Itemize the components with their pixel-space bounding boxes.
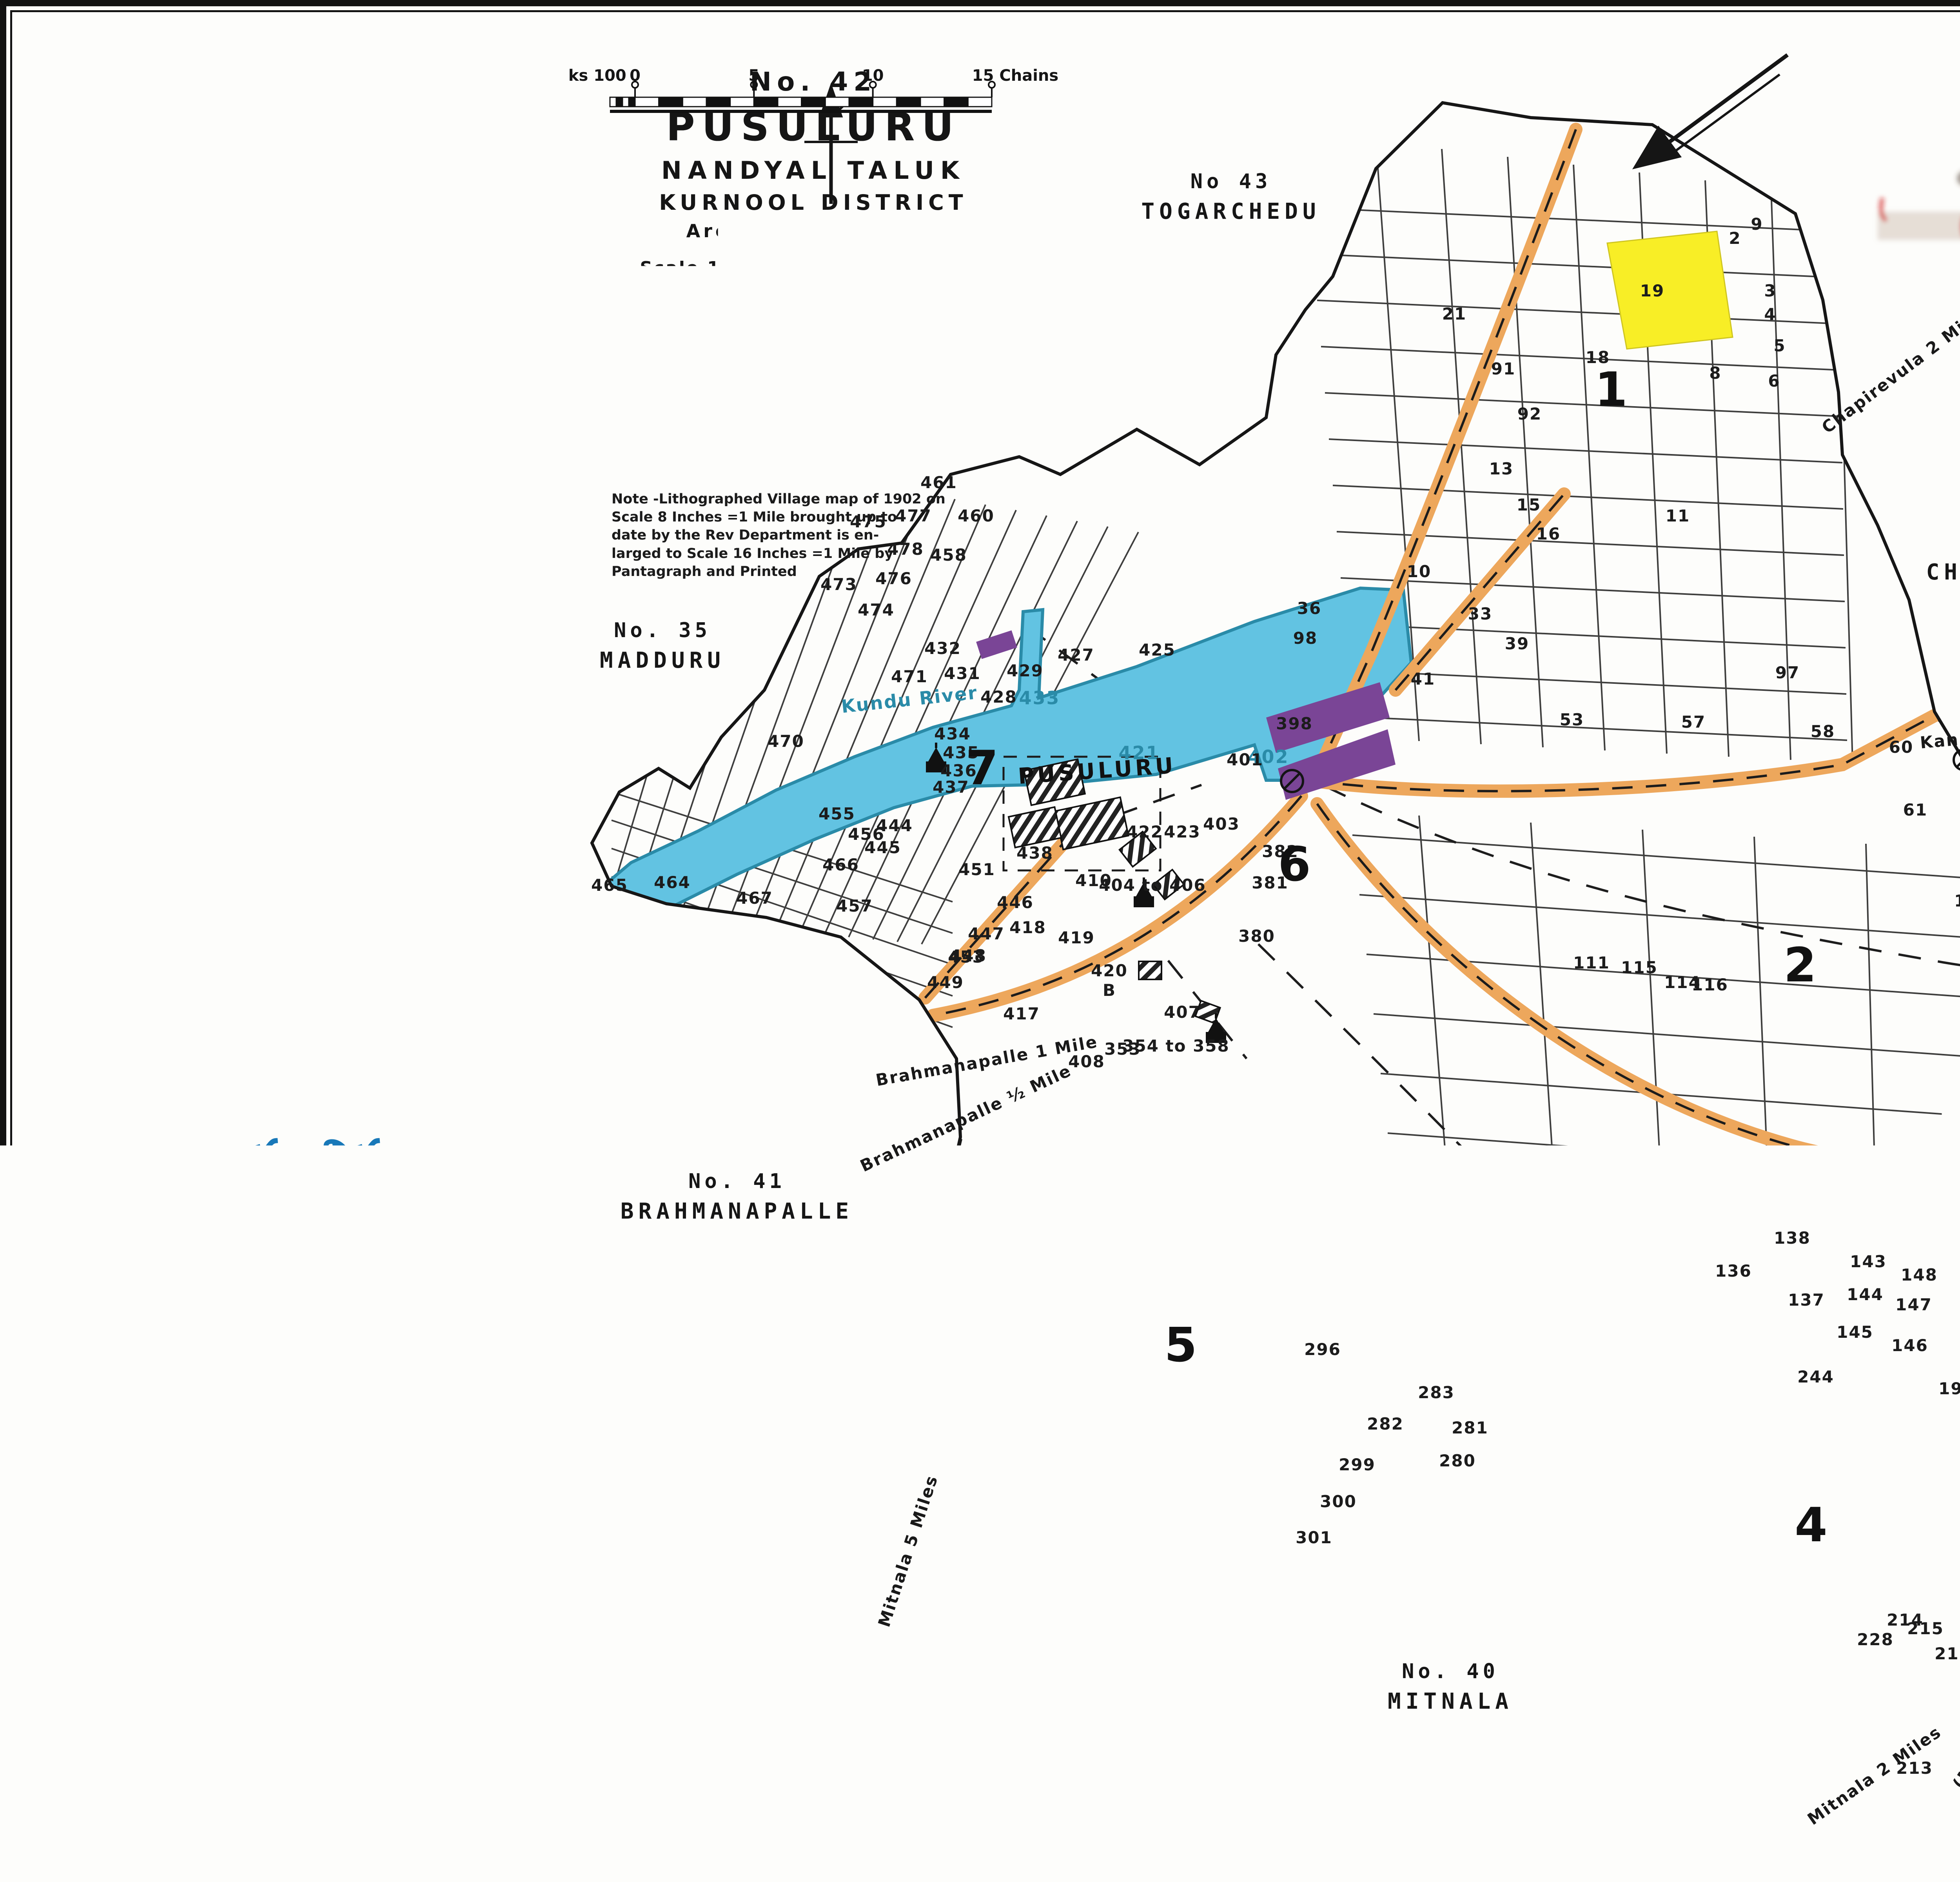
svg-text:152: 152 — [1954, 891, 1960, 910]
svg-text:244: 244 — [1797, 1367, 1834, 1386]
svg-text:417: 417 — [1003, 1004, 1040, 1023]
erased-pen-marks — [1878, 170, 1960, 282]
svg-text:215: 215 — [1907, 1619, 1944, 1638]
svg-text:148: 148 — [1901, 1265, 1938, 1284]
svg-text:398: 398 — [1276, 714, 1313, 733]
svg-text:97: 97 — [1775, 663, 1800, 682]
district-title: KURNOOL DISTRICT — [568, 190, 1058, 215]
svg-text:19: 19 — [1640, 281, 1664, 300]
svg-text:No. 40: No. 40 — [1402, 1660, 1499, 1683]
svg-text:437: 437 — [933, 778, 969, 797]
svg-text:39: 39 — [1505, 634, 1529, 653]
svg-text:281: 281 — [1452, 1418, 1488, 1437]
svg-text:15 Chains: 15 Chains — [972, 67, 1058, 85]
legend-swatch — [73, 1570, 186, 1630]
svg-text:2: 2 — [1784, 938, 1817, 993]
svg-text:427: 427 — [1058, 645, 1094, 665]
svg-text:455: 455 — [818, 804, 855, 823]
legend-swatch — [73, 1654, 186, 1715]
svg-text:467: 467 — [736, 888, 773, 908]
svg-text:98: 98 — [1293, 629, 1318, 648]
svg-text:195: 195 — [1938, 1379, 1960, 1398]
svg-text:401: 401 — [1227, 750, 1263, 769]
svg-text:115: 115 — [1621, 958, 1658, 977]
legend-item-2: అసైన్డ్ భూములు — [73, 1400, 974, 1461]
svg-text:353: 353 — [1104, 1039, 1141, 1059]
svg-text:57: 57 — [1681, 712, 1706, 732]
svg-text:432: 432 — [924, 639, 961, 658]
legend-label: చెరువులు, కాలువలు మరియు వాగులు — [233, 1742, 804, 1796]
svg-text:36: 36 — [1297, 599, 1321, 618]
svg-text:0: 0 — [630, 67, 641, 85]
svg-text:60: 60 — [1889, 738, 1913, 757]
svg-text:138: 138 — [1774, 1228, 1811, 1248]
svg-text:21: 21 — [1442, 304, 1466, 323]
svg-text:9: 9 — [1751, 214, 1763, 234]
svg-text:425: 425 — [1139, 640, 1176, 659]
legend-label: ఫారెస్ట్ భూములు — [233, 1658, 479, 1711]
svg-text:449: 449 — [927, 973, 964, 992]
svg-text:422: 422 — [1126, 822, 1163, 841]
svg-text:471: 471 — [891, 667, 928, 686]
svg-text:434: 434 — [934, 724, 971, 743]
svg-text:B: B — [1103, 981, 1116, 1000]
svg-text:451: 451 — [958, 860, 995, 879]
svg-text:5: 5 — [748, 67, 759, 85]
svg-text:3: 3 — [1764, 281, 1776, 300]
svg-text:Kundu River: Kundu River — [840, 682, 979, 717]
svg-text:445: 445 — [864, 838, 901, 857]
svg-text:429: 429 — [1007, 661, 1044, 680]
legend-item-0: ప్రభుత్వ భూములు — [73, 1231, 974, 1291]
svg-text:143: 143 — [1850, 1252, 1887, 1271]
svg-text:58: 58 — [1811, 722, 1835, 741]
legend-swatch — [73, 1824, 186, 1882]
legend-label: ప్రభుత్వ భూములు — [233, 1234, 505, 1288]
svg-text:296: 296 — [1304, 1340, 1341, 1359]
svg-text:466: 466 — [822, 855, 859, 874]
legend-item-1: అభ్యంతరకర భూములు — [73, 1315, 974, 1376]
svg-text:420: 420 — [1091, 961, 1128, 980]
svg-text:Chapirevula 2 Miles: Chapirevula 2 Miles — [1818, 299, 1960, 437]
svg-text:216: 216 — [1935, 1644, 1960, 1663]
svg-text:403: 403 — [1203, 814, 1240, 834]
svg-text:(Mallappa): (Mallappa) — [1949, 1688, 1960, 1792]
svg-text:136: 136 — [1715, 1261, 1752, 1281]
svg-text:8: 8 — [1709, 363, 1721, 383]
svg-text:457: 457 — [836, 896, 873, 916]
legend-label: రహదారులు — [233, 1827, 408, 1880]
svg-text:448: 448 — [950, 946, 987, 965]
svg-text:407: 407 — [1164, 1003, 1201, 1022]
scale-bar: Links 100051015 Chains — [568, 67, 1058, 141]
svg-text:474: 474 — [858, 600, 895, 619]
map-sheet: Kundu River433421402 4614604774754784764… — [0, 0, 1960, 1882]
svg-text:2: 2 — [1729, 229, 1741, 248]
svg-text:280: 280 — [1439, 1451, 1476, 1470]
svg-text:4: 4 — [1795, 1498, 1828, 1553]
svg-text:299: 299 — [1339, 1455, 1376, 1474]
svg-text:6: 6 — [1768, 371, 1780, 391]
svg-text:431: 431 — [944, 664, 981, 683]
svg-text:16: 16 — [1536, 524, 1561, 543]
svg-text:111: 111 — [1573, 953, 1610, 972]
svg-text:41: 41 — [1411, 669, 1435, 688]
svg-text:465: 465 — [591, 876, 628, 895]
forest-land-patch — [1759, 1313, 1774, 1328]
svg-text:380: 380 — [1238, 926, 1275, 946]
svg-text:No. 35: No. 35 — [614, 619, 711, 642]
legend-title-underline — [237, 1197, 457, 1203]
svg-text:282: 282 — [1367, 1414, 1404, 1433]
svg-text:11: 11 — [1666, 506, 1690, 525]
svg-text:228: 228 — [1857, 1630, 1894, 1649]
svg-text:1: 1 — [1595, 363, 1628, 417]
svg-text:147: 147 — [1895, 1295, 1932, 1314]
svg-text:423: 423 — [1164, 822, 1201, 841]
legend-label: వక్ఫ్ భూములు — [233, 1573, 453, 1626]
svg-text:5: 5 — [1773, 336, 1786, 355]
legend-item-7: రహదారులు — [73, 1824, 974, 1882]
svg-text:438: 438 — [1016, 843, 1053, 863]
svg-text:MITNALA: MITNALA — [1388, 1689, 1513, 1714]
svg-text:446: 446 — [997, 893, 1034, 912]
svg-text:444: 444 — [876, 816, 913, 835]
legend-swatch — [73, 1315, 186, 1376]
svg-text:61: 61 — [1903, 800, 1927, 819]
svg-text:6: 6 — [1278, 837, 1311, 892]
svg-text:470: 470 — [768, 732, 804, 751]
svg-text:33: 33 — [1468, 604, 1492, 623]
road-junction-symbols — [1281, 750, 1960, 1366]
svg-text:300: 300 — [1320, 1492, 1357, 1511]
area-text: Area 2112 09 Acres — [568, 220, 1058, 242]
svg-text:418: 418 — [1009, 918, 1046, 937]
legend: సూచిక ప్రభుత్వ భూములుఅభ్యంతరకర భూములుఅసై… — [73, 1129, 974, 1882]
svg-text:301: 301 — [1296, 1528, 1332, 1547]
legend-item-5: ఫారెస్ట్ భూములు — [73, 1654, 974, 1715]
svg-text:145: 145 — [1837, 1322, 1873, 1342]
svg-text:428: 428 — [980, 687, 1017, 707]
legend-label: అసైన్డ్ భూములు — [233, 1404, 474, 1457]
legend-item-6: చెరువులు, కాలువలు మరియు వాగులు — [73, 1739, 974, 1799]
legend-item-3: దేవాలయ భూములు — [73, 1485, 974, 1545]
legend-swatch — [73, 1739, 186, 1799]
svg-text:15: 15 — [1517, 495, 1541, 514]
svg-text:5: 5 — [1164, 1318, 1197, 1373]
svg-text:10: 10 — [862, 67, 884, 85]
svg-text:4: 4 — [1764, 305, 1776, 324]
svg-text:433: 433 — [1019, 687, 1060, 708]
legend-title: సూచిక — [253, 1129, 974, 1195]
legend-swatch — [73, 1485, 186, 1545]
legend-label: దేవాలయ భూములు — [233, 1488, 532, 1542]
title-block: No. 42 PUSULURU NANDYAL TALUK KURNOOL DI… — [568, 67, 1058, 365]
svg-text:10: 10 — [1407, 562, 1431, 581]
svg-text:MADDURU: MADDURU — [600, 648, 725, 673]
svg-text:No 43: No 43 — [1191, 170, 1272, 193]
svg-text:CHAPIREVULA: CHAPIREVULA — [1926, 560, 1960, 585]
chapirevula-exit-road — [1639, 55, 1788, 165]
svg-text:137: 137 — [1788, 1290, 1825, 1310]
representative-fraction: 1 3960 — [937, 253, 987, 285]
legend-label: అభ్యంతరకర భూములు — [233, 1319, 578, 1372]
svg-text:92: 92 — [1517, 404, 1542, 423]
svg-text:TOGARCHEDU: TOGARCHEDU — [1141, 199, 1320, 224]
legend-item-4: వక్ఫ్ భూములు — [73, 1570, 974, 1630]
note-text: Note -Lithographed Village map of 1902 o… — [612, 490, 1011, 581]
acre-box: 1 Acre — [777, 296, 850, 365]
svg-text:464: 464 — [654, 873, 691, 892]
svg-text:Links 100: Links 100 — [568, 67, 626, 85]
road-distance-labels: Chapirevula 2 MilesKanala 2½ MilesTogarc… — [857, 299, 1960, 1829]
svg-text:461: 461 — [920, 473, 957, 492]
svg-text:91: 91 — [1491, 359, 1515, 378]
taluk-title: NANDYAL TALUK — [568, 156, 1058, 185]
svg-text:419: 419 — [1058, 928, 1095, 947]
svg-text:13: 13 — [1489, 459, 1514, 478]
svg-text:144: 144 — [1847, 1285, 1884, 1304]
svg-text:7: 7 — [965, 741, 998, 796]
svg-text:404 to 406: 404 to 406 — [1099, 876, 1206, 895]
svg-text:447: 447 — [968, 924, 1005, 943]
legend-swatch — [73, 1231, 186, 1291]
svg-text:283: 283 — [1418, 1383, 1455, 1402]
svg-text:146: 146 — [1891, 1336, 1928, 1355]
svg-text:116: 116 — [1691, 975, 1728, 994]
legend-swatch — [73, 1400, 186, 1461]
scale-text: Scale 16 Inches = 1 Mile 1 3960 — [568, 253, 1058, 285]
svg-text:53: 53 — [1560, 710, 1584, 729]
